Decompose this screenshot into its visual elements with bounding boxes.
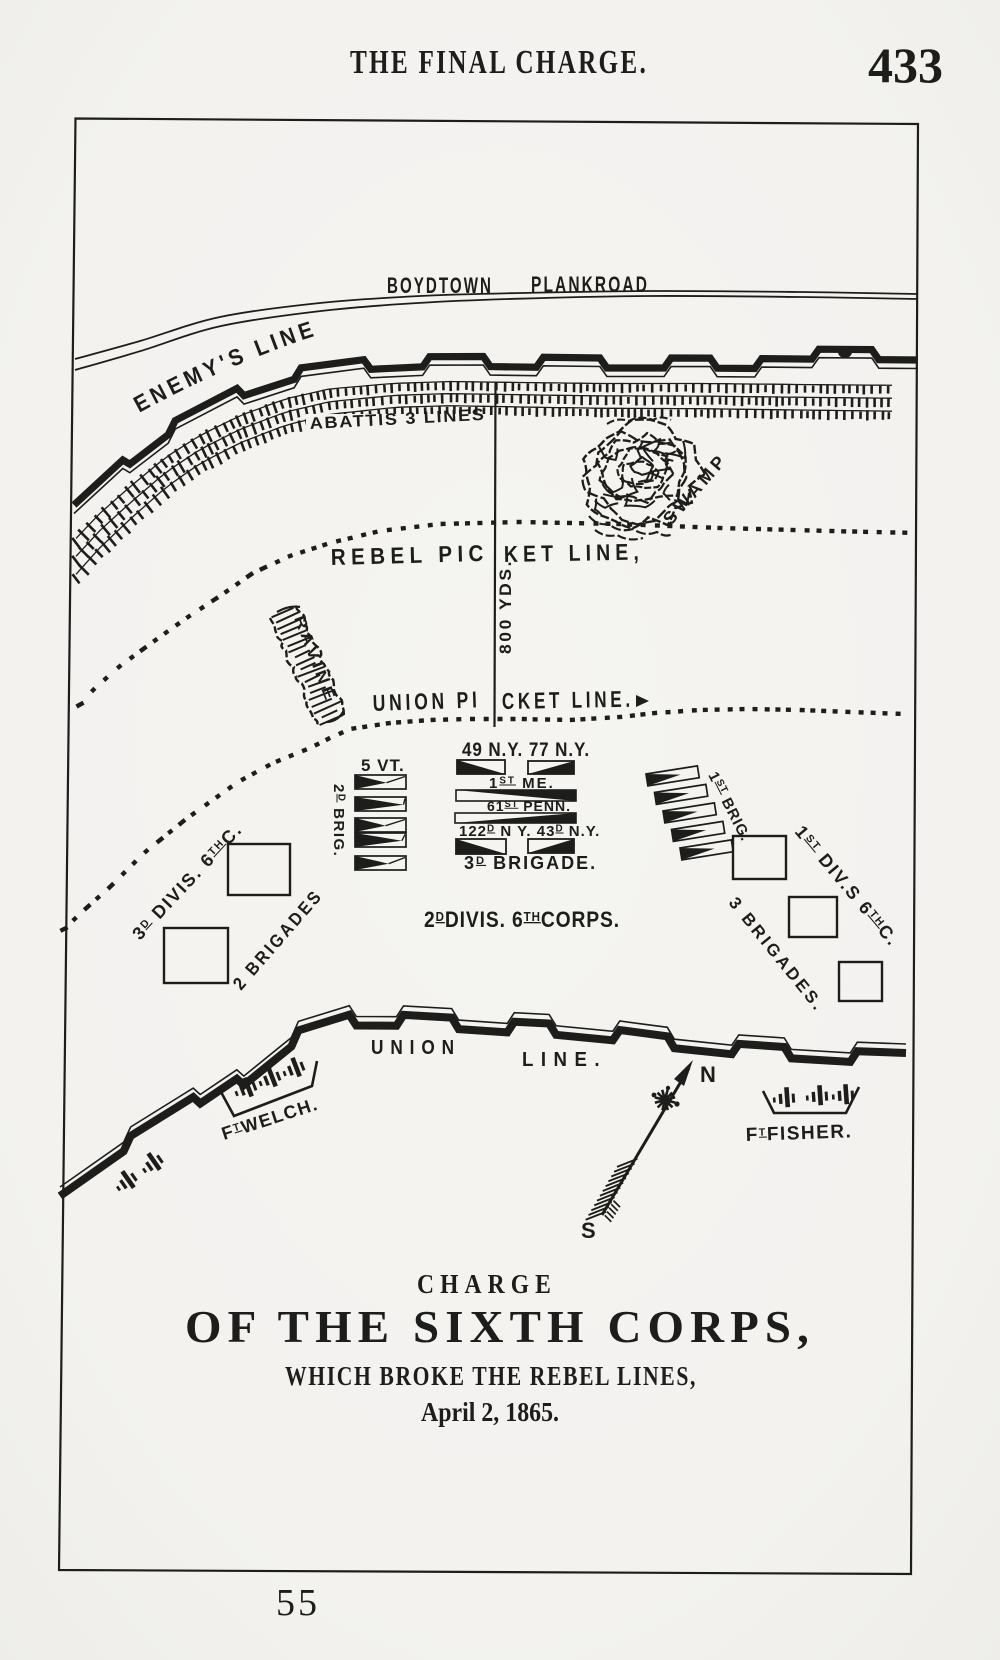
svg-text:5 VT.: 5 VT. [361, 756, 405, 775]
svg-text:April 2, 1865.: April 2, 1865. [421, 1397, 559, 1427]
svg-text:CKET LINE.: CKET LINE. [502, 686, 634, 714]
svg-text:REBEL PIC: REBEL PIC [330, 540, 489, 570]
svg-text:122D​ N Y. 43D​ N.Y.: 122D​ N Y. 43D​ N.Y. [459, 823, 600, 840]
svg-text:S: S [581, 1218, 596, 1243]
svg-text:PLANKROAD: PLANKROAD [531, 272, 649, 297]
svg-text:N: N [700, 1062, 716, 1087]
svg-text:55: 55 [276, 1582, 320, 1624]
svg-text:OF THE SIXTH CORPS,: OF THE SIXTH CORPS, [185, 1301, 815, 1352]
svg-text:433: 433 [868, 37, 943, 93]
svg-text:UNION PI: UNION PI [372, 686, 481, 716]
svg-text:THE FINAL CHARGE.: THE FINAL CHARGE. [350, 44, 648, 81]
svg-text:LINE.: LINE. [522, 1049, 607, 1071]
svg-text:61ST​ PENN.: 61ST​ PENN. [487, 798, 571, 814]
svg-text:KET LINE,: KET LINE, [504, 539, 644, 567]
svg-text:WHICH BROKE THE REBEL LINES,: WHICH BROKE THE REBEL LINES, [285, 1361, 697, 1391]
svg-text:BOYDTOWN: BOYDTOWN [387, 273, 493, 298]
svg-text:2D​DIVIS. 6TH​CORPS.: 2D​DIVIS. 6TH​CORPS. [424, 907, 620, 932]
svg-text:49 N.Y. 77 N.Y.: 49 N.Y. 77 N.Y. [462, 740, 590, 761]
svg-text:UNION: UNION [371, 1037, 461, 1059]
svg-text:800 YDS.: 800 YDS. [496, 559, 515, 654]
svg-text:CHARGE: CHARGE [417, 1269, 557, 1299]
